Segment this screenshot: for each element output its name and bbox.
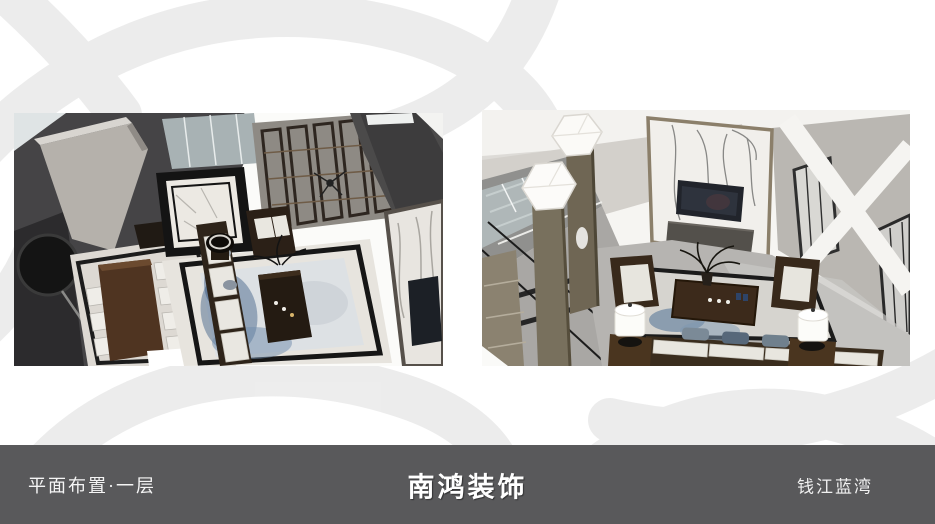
- glass-partition: [162, 113, 260, 169]
- footer-bar: 平面布置·一层 南鸿装饰 钱江蓝湾: [0, 445, 935, 524]
- footer-company-title: 南鸿装饰: [408, 465, 528, 504]
- render-image-left: [14, 113, 443, 366]
- armchair-left: [610, 255, 659, 310]
- footer-project-label: 钱江蓝湾: [797, 472, 873, 497]
- armchair-right: [771, 256, 820, 312]
- tv-marble-wall: [648, 118, 772, 258]
- render-image-right: [482, 110, 910, 366]
- footer-section-label: 平面布置·一层: [28, 472, 156, 498]
- presentation-slide: 平面布置·一层 南鸿装饰 钱江蓝湾: [0, 0, 935, 524]
- armchair: [246, 206, 296, 258]
